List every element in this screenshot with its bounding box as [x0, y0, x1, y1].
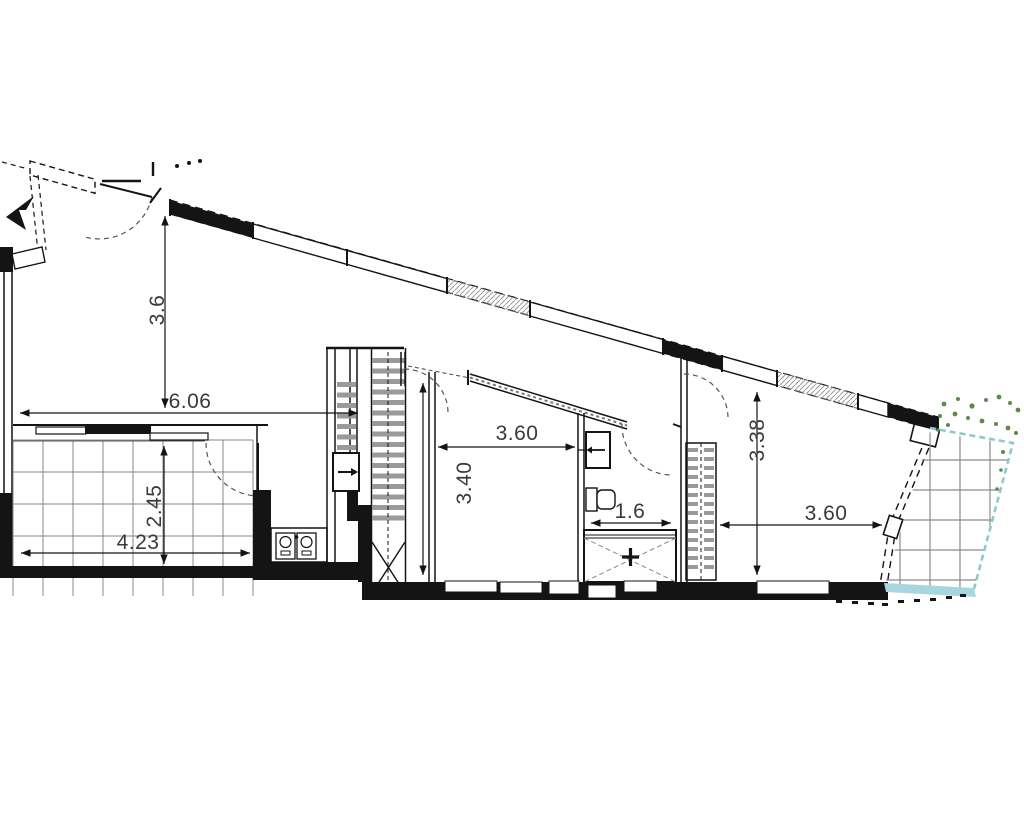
south-window: [549, 581, 579, 594]
window-segment: [858, 395, 888, 418]
door-header-dashed: [408, 366, 470, 378]
entry-door-swing-arc: [85, 197, 152, 239]
bathroom-door-swing-arc: [622, 424, 673, 475]
shaft-wall: [347, 491, 358, 521]
terrace-sliding-window: [13, 425, 268, 441]
shower-tray: [584, 530, 676, 582]
left-terrace: [10, 425, 268, 596]
dim-label-terrace-width: 4.23: [117, 531, 160, 554]
exterior-window-wall: [170, 199, 938, 432]
dim-label-living-width: 6.06: [169, 390, 212, 413]
terrace-tile-grid: [878, 425, 1020, 595]
terrace-edge-wall: [10, 566, 268, 578]
stair-wall-mass: [358, 505, 372, 582]
east-sliding-wall: [881, 424, 940, 582]
dim-label-rightroom-height: 3.38: [746, 419, 769, 462]
wall-stub-dashed: [2, 162, 28, 169]
window-segment: [347, 250, 447, 292]
vestibule-wall-dashed: [30, 176, 38, 252]
bathroom-sink: [578, 432, 610, 468]
west-wall: [0, 272, 13, 578]
south-window: [588, 585, 616, 598]
floor-plan-canvas: 3.6 6.06 2.45 4.23 3.60 3.40 1.6 3.38 3.…: [0, 0, 1024, 819]
kitchen-wall-mass: [271, 562, 362, 580]
interior-diagonal-wall: [468, 370, 627, 429]
right-room-door-swing-arc: [684, 374, 728, 418]
vegetation-speckles: [936, 395, 1020, 491]
vestibule-wall-dashed: [38, 175, 46, 250]
south-window: [624, 581, 657, 592]
staircase: [326, 348, 406, 595]
dim-label-midroom-width: 3.60: [496, 422, 539, 445]
south-window: [757, 581, 829, 594]
wall-segment: [170, 201, 253, 238]
entry-door-leaf: [100, 184, 152, 197]
wall-corner-band: [12, 247, 45, 269]
wall-stub: [673, 424, 681, 427]
terrace-border-teal: [930, 428, 1013, 589]
wall-chunk: [0, 493, 13, 578]
south-window: [445, 581, 497, 592]
window-segment: [253, 224, 347, 265]
floor-plan-drawing: 3.6 6.06 2.45 4.23 3.60 3.40 1.6 3.38 3.…: [0, 0, 1024, 819]
hall-door-swing-arc: [404, 369, 448, 413]
wall-hatch-segment: [447, 279, 530, 316]
kitchen-wall-mass: [253, 490, 271, 580]
wall-hatch-segment: [777, 372, 858, 409]
entrance-arrow-icon: [6, 196, 34, 230]
stair-treads-left: [337, 382, 356, 450]
south-window: [500, 582, 542, 593]
dim-label-bath-width: 1.6: [615, 500, 646, 523]
wardrobe-shaft: [686, 443, 716, 580]
entrance-area: [0, 159, 202, 272]
wall-chunk: [0, 247, 13, 272]
dim-label-living-height: 3.6: [146, 295, 169, 326]
window-segment: [722, 356, 777, 386]
wall-segment: [663, 340, 722, 371]
toilet: [586, 488, 615, 511]
bathroom: [578, 413, 681, 582]
dim-label-midroom-height: 3.40: [453, 462, 476, 505]
terrace-door-swing-arc: [206, 443, 258, 496]
dim-label-rightroom-width: 3.60: [805, 502, 848, 525]
south-wall: [362, 581, 888, 600]
window-segment: [530, 302, 663, 354]
dim-label-terrace-height: 2.45: [143, 485, 166, 528]
